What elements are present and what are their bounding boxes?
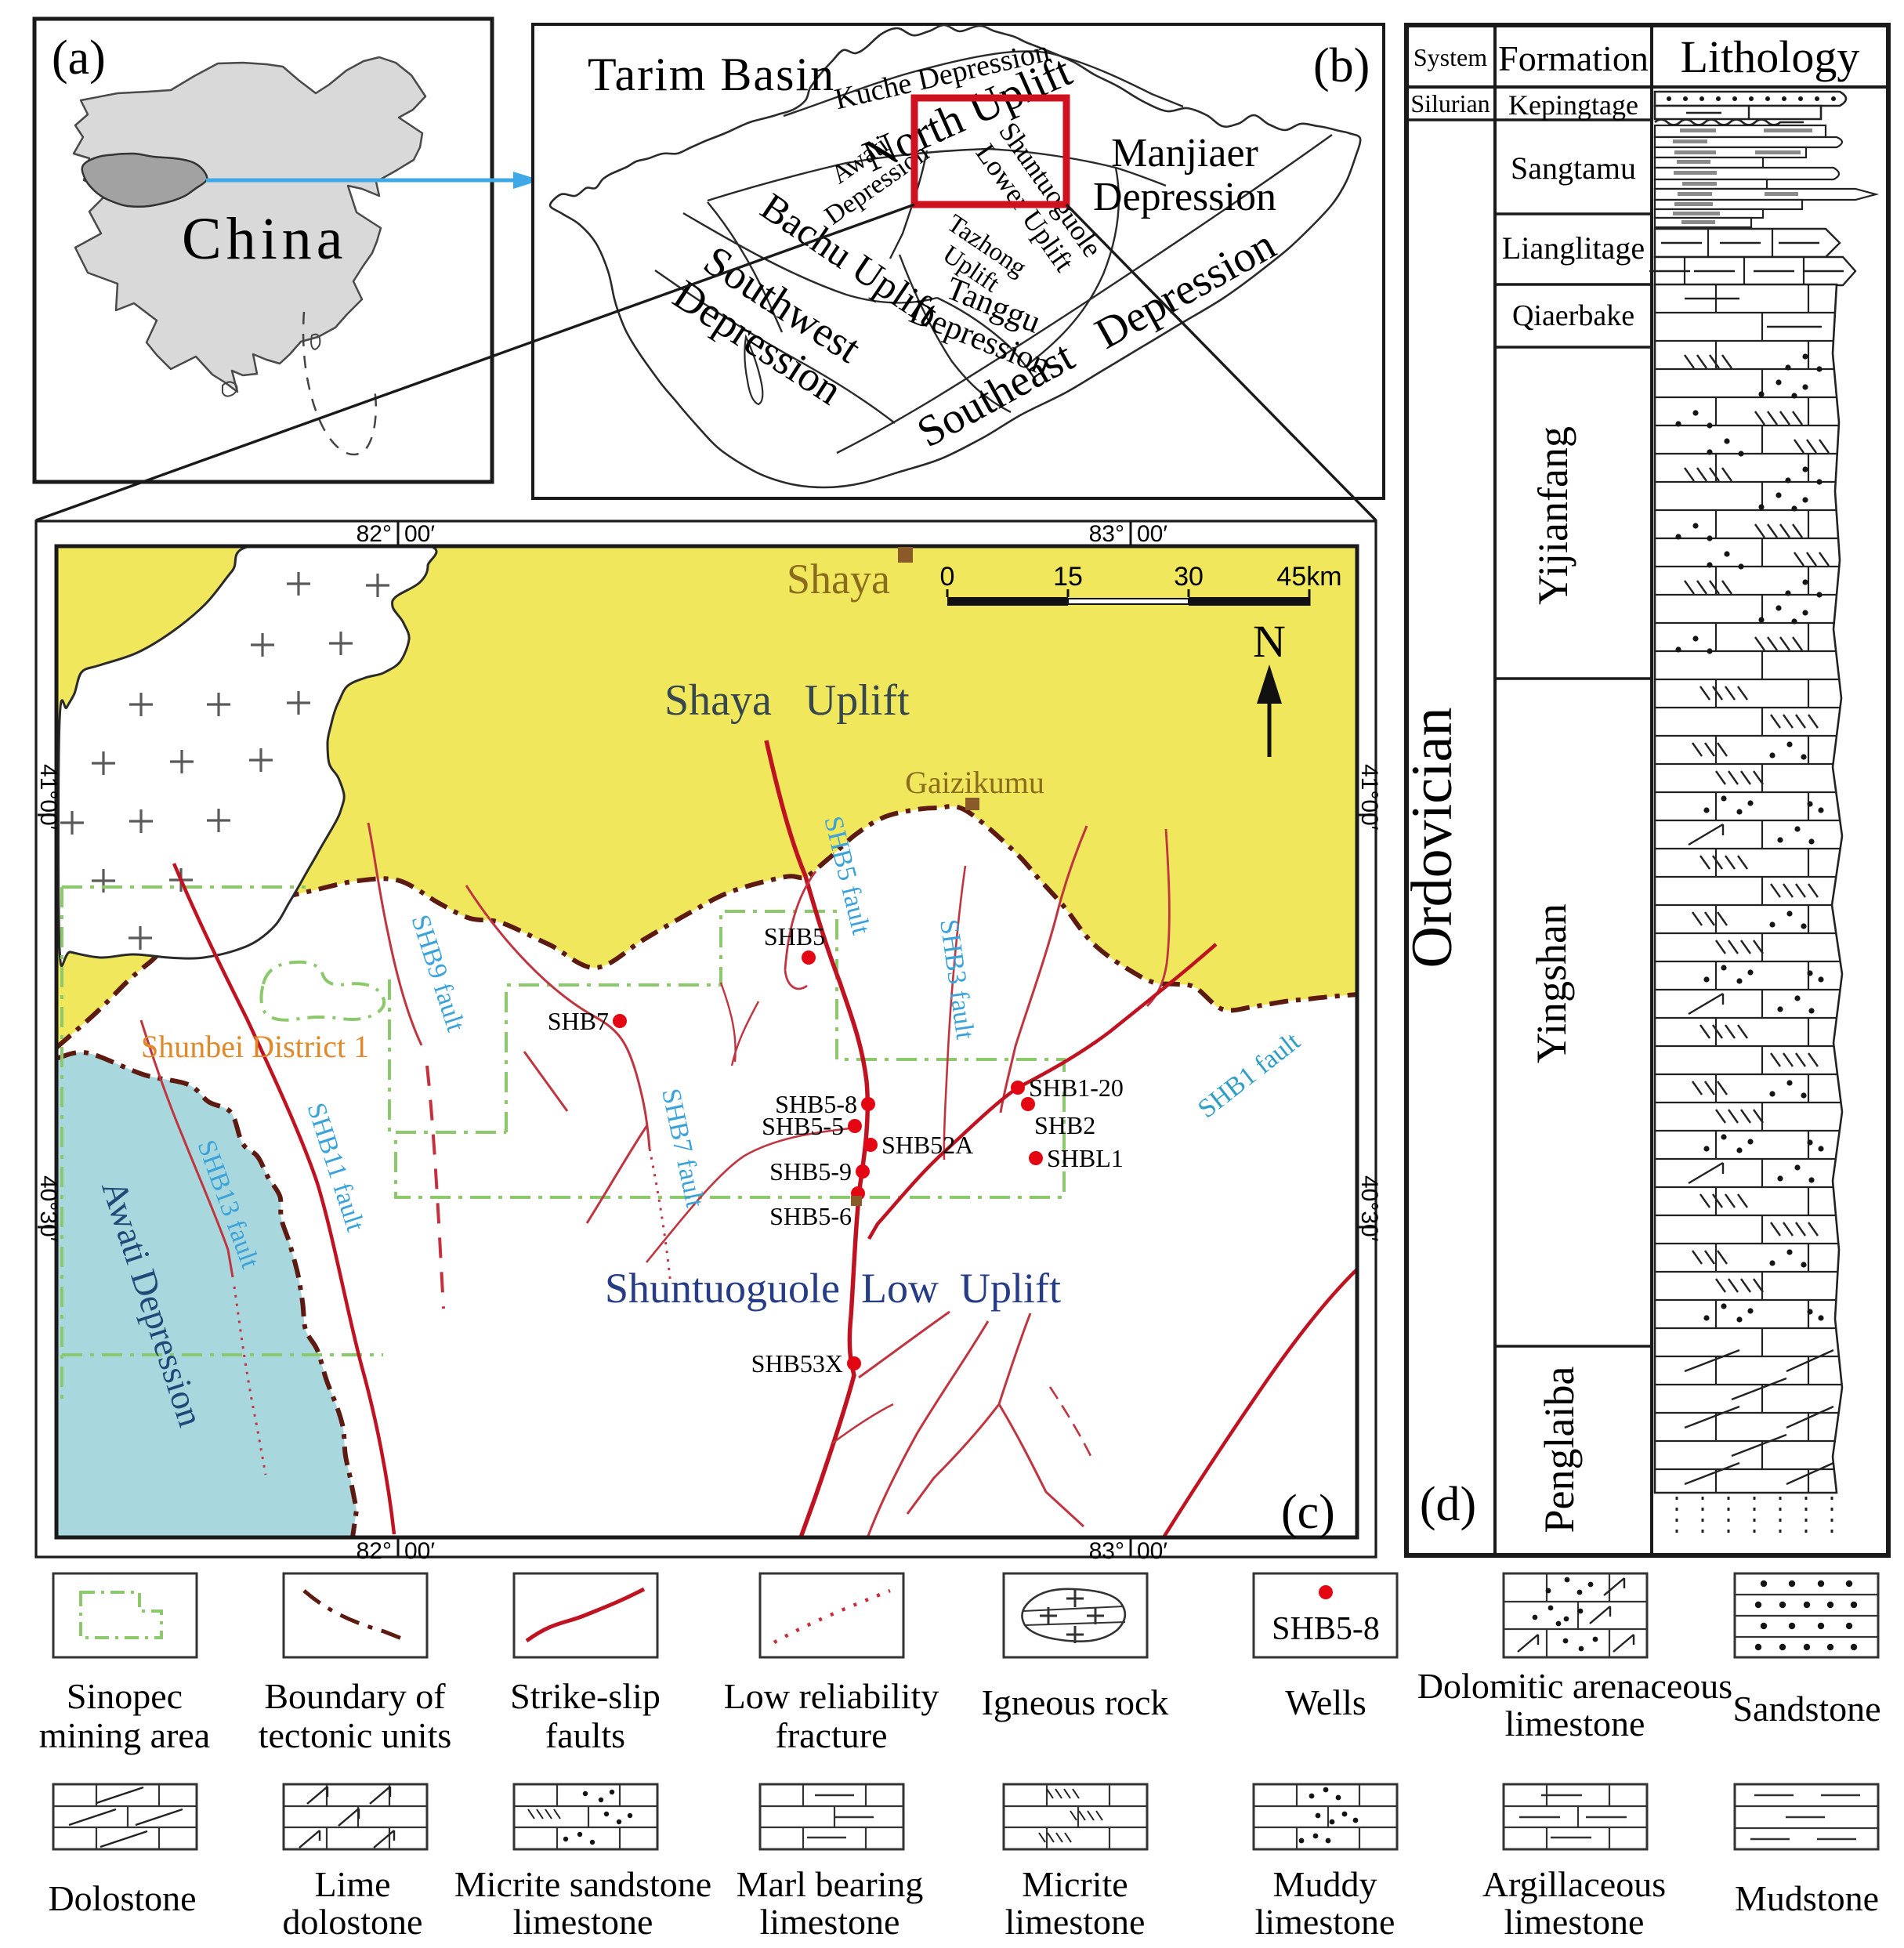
svg-text:limestone: limestone xyxy=(1255,1902,1395,1942)
svg-text:SHB5: SHB5 xyxy=(764,922,825,950)
svg-text:82°: 82° xyxy=(357,521,392,547)
svg-text:Wells: Wells xyxy=(1285,1682,1366,1722)
svg-text:Qiaerbake: Qiaerbake xyxy=(1512,299,1634,332)
svg-text:Lianglitage: Lianglitage xyxy=(1502,230,1645,266)
svg-text:(c): (c) xyxy=(1281,1486,1335,1539)
svg-text:limestone: limestone xyxy=(1504,1902,1645,1942)
svg-text:Igneous rock: Igneous rock xyxy=(982,1682,1169,1722)
svg-text:SHB7: SHB7 xyxy=(548,1007,609,1035)
svg-text:faults: faults xyxy=(545,1715,625,1755)
svg-text:Silurian: Silurian xyxy=(1410,89,1490,118)
svg-text:China: China xyxy=(182,206,348,272)
svg-text:Formation: Formation xyxy=(1498,38,1649,78)
svg-text:Micrite: Micrite xyxy=(1022,1864,1128,1904)
svg-text:System: System xyxy=(1414,43,1487,71)
svg-text:45km: 45km xyxy=(1276,562,1341,592)
svg-text:40°30′: 40°30′ xyxy=(35,1175,61,1242)
svg-text:limestone: limestone xyxy=(1005,1902,1146,1942)
svg-text:tectonic units: tectonic units xyxy=(259,1715,452,1755)
svg-text:83°: 83° xyxy=(1089,1538,1124,1564)
svg-text:15: 15 xyxy=(1053,562,1083,592)
svg-text:Argillaceous: Argillaceous xyxy=(1482,1864,1666,1904)
svg-text:limestone: limestone xyxy=(1505,1704,1645,1743)
svg-text:Yijianfang: Yijianfang xyxy=(1529,426,1576,605)
svg-text:Tarim Basin: Tarim Basin xyxy=(588,49,835,100)
svg-text:dolostone: dolostone xyxy=(283,1902,423,1942)
svg-text:fracture: fracture xyxy=(776,1715,888,1755)
svg-text:Sandstone: Sandstone xyxy=(1732,1689,1880,1729)
svg-text:Lithology: Lithology xyxy=(1681,31,1860,82)
svg-text:Shaya Uplift: Shaya Uplift xyxy=(664,676,910,725)
svg-text:SHB5-5: SHB5-5 xyxy=(762,1112,844,1140)
svg-text:Low reliability: Low reliability xyxy=(724,1676,939,1716)
svg-text:82°: 82° xyxy=(357,1538,392,1564)
svg-text:SHB5-8: SHB5-8 xyxy=(1272,1611,1380,1647)
svg-text:Shaya: Shaya xyxy=(787,556,890,603)
svg-text:Sinopec: Sinopec xyxy=(67,1676,183,1716)
svg-text:Penglaiba: Penglaiba xyxy=(1536,1367,1583,1533)
svg-text:SHB52A: SHB52A xyxy=(881,1131,973,1159)
svg-text:SHB5-6: SHB5-6 xyxy=(769,1202,852,1230)
svg-text:Depression: Depression xyxy=(1093,175,1276,219)
svg-text:40°30′: 40°30′ xyxy=(1356,1175,1382,1242)
svg-text:SHB2: SHB2 xyxy=(1034,1111,1095,1139)
svg-text:Lime: Lime xyxy=(314,1864,390,1904)
svg-text:limestone: limestone xyxy=(760,1902,900,1942)
svg-text:N: N xyxy=(1253,616,1286,667)
svg-text:00′: 00′ xyxy=(404,521,435,547)
svg-text:Shunbei District 1: Shunbei District 1 xyxy=(141,1029,369,1064)
svg-text:0: 0 xyxy=(940,562,955,592)
svg-text:SHB53X: SHB53X xyxy=(751,1349,843,1378)
svg-text:00′: 00′ xyxy=(1137,1538,1167,1564)
svg-text:(d): (d) xyxy=(1420,1478,1476,1531)
svg-text:limestone: limestone xyxy=(513,1902,653,1942)
svg-text:00′: 00′ xyxy=(404,1538,435,1564)
svg-text:30: 30 xyxy=(1174,562,1204,592)
svg-text:Strike-slip: Strike-slip xyxy=(510,1676,661,1716)
svg-text:Gaizikumu: Gaizikumu xyxy=(905,765,1044,800)
svg-text:(a): (a) xyxy=(52,31,106,85)
svg-text:Manjiaer: Manjiaer xyxy=(1111,131,1258,176)
svg-text:41°00′: 41°00′ xyxy=(35,764,61,831)
svg-text:Kepingtage: Kepingtage xyxy=(1508,89,1638,121)
svg-text:SHB5-9: SHB5-9 xyxy=(769,1157,852,1186)
svg-text:(b): (b) xyxy=(1313,39,1370,92)
svg-text:00′: 00′ xyxy=(1137,521,1167,547)
svg-text:41°00′: 41°00′ xyxy=(1356,764,1382,831)
svg-text:Dolostone: Dolostone xyxy=(48,1878,196,1918)
svg-text:SHBL1: SHBL1 xyxy=(1047,1144,1124,1172)
svg-text:SHB1-20: SHB1-20 xyxy=(1029,1074,1124,1102)
svg-text:Boundary of: Boundary of xyxy=(264,1676,446,1716)
svg-text:Shuntuoguole Low Uplift: Shuntuoguole Low Uplift xyxy=(605,1265,1061,1312)
svg-text:Mudstone: Mudstone xyxy=(1735,1878,1879,1918)
svg-text:Muddy: Muddy xyxy=(1273,1864,1377,1904)
svg-text:Dolomitic arenaceous: Dolomitic arenaceous xyxy=(1417,1666,1732,1706)
svg-text:Marl bearing: Marl bearing xyxy=(737,1864,924,1904)
svg-text:mining area: mining area xyxy=(39,1715,210,1755)
svg-text:Ordovician: Ordovician xyxy=(1400,708,1464,969)
svg-text:Micrite sandstone: Micrite sandstone xyxy=(454,1864,711,1904)
svg-text:Yingshan: Yingshan xyxy=(1528,903,1575,1063)
svg-text:83°: 83° xyxy=(1089,521,1124,547)
svg-text:Sangtamu: Sangtamu xyxy=(1511,150,1636,186)
